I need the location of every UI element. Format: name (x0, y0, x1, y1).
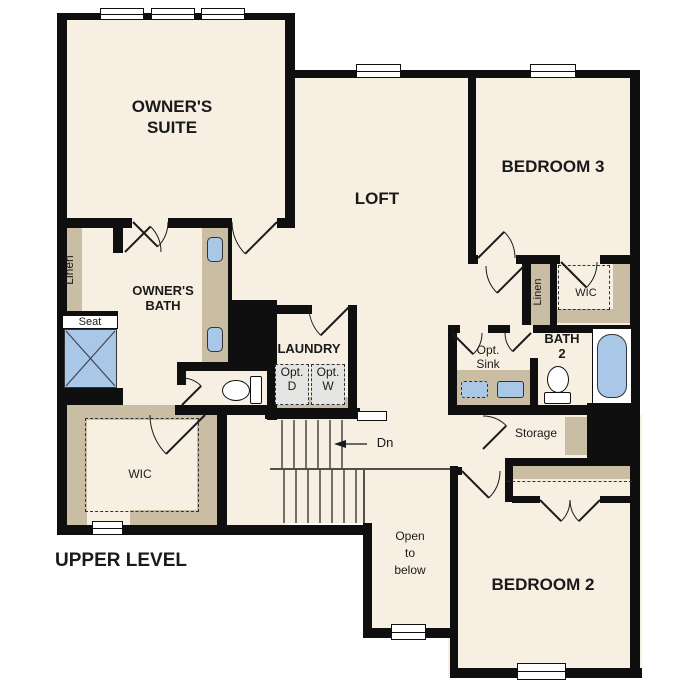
appliance-label-opt-washer: Opt. W (312, 366, 344, 394)
room-label-bedroom2: BEDROOM 2 (473, 574, 613, 595)
down-arrow (334, 440, 367, 448)
plan-title: UPPER LEVEL (55, 550, 275, 572)
closet-label-linen-bath2: Linen (532, 272, 548, 312)
room-label-laundry: LAUNDRY (270, 342, 348, 357)
fixture-label-opt-sink: Opt. Sink (464, 344, 512, 372)
room-label-wic-owner: WIC (124, 468, 156, 482)
appliance-label-opt-dryer: Opt. D (276, 366, 308, 394)
floor-plan: OWNER'S SUITE LOFT BEDROOM 3 BEDROOM 2 O… (0, 0, 687, 687)
stairs (270, 420, 456, 523)
room-label-storage: Storage (508, 427, 564, 441)
closet-label-linen-owner: Linen (63, 250, 79, 290)
label-open-to-below: Open to below (380, 528, 440, 578)
room-label-wic-bed3: WIC (570, 287, 602, 300)
room-label-loft: LOFT (347, 188, 407, 209)
shower-x-lines (66, 331, 115, 386)
stairs-label-down: Dn (372, 436, 398, 451)
room-label-owners-suite: OWNER'S SUITE (112, 96, 232, 139)
room-label-owners-bath: OWNER'S BATH (118, 284, 208, 314)
door-arcs (125, 222, 600, 521)
fixture-label-seat: Seat (62, 315, 118, 329)
room-label-bath2: BATH 2 (538, 332, 586, 362)
room-label-bedroom3: BEDROOM 3 (483, 156, 623, 177)
